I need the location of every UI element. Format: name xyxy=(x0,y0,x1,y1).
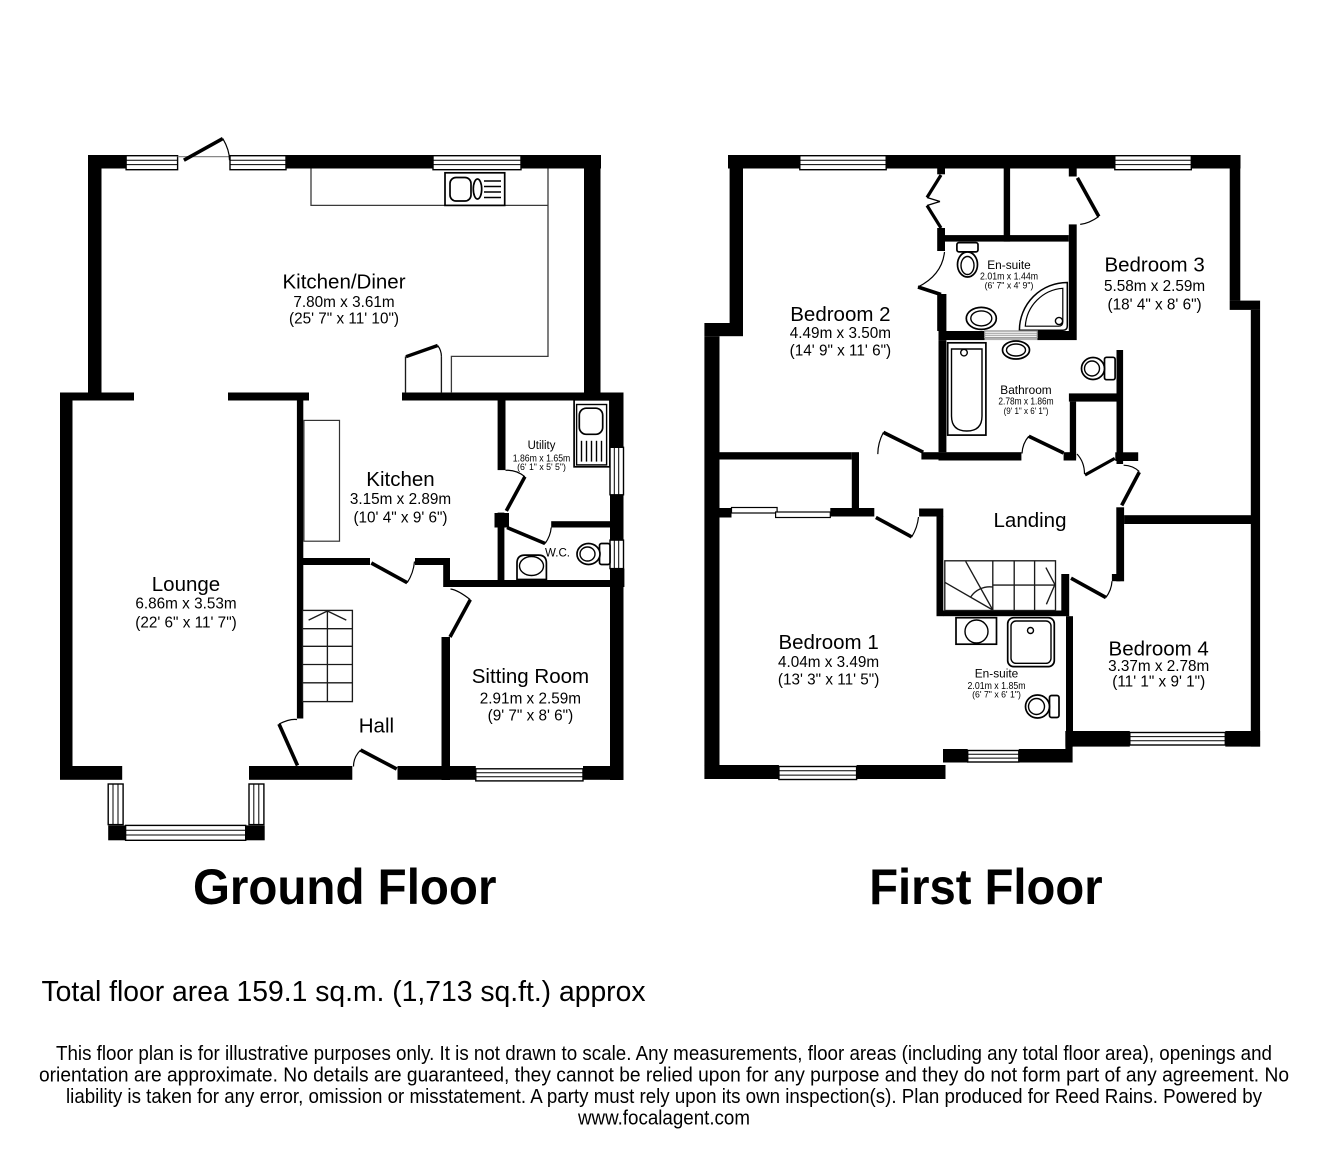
svg-text:7.80m x 3.61m: 7.80m x 3.61m xyxy=(293,294,394,311)
svg-text:Bedroom 3: Bedroom 3 xyxy=(1104,254,1204,277)
svg-text:(22' 6" x 11' 7"): (22' 6" x 11' 7") xyxy=(135,615,236,632)
svg-text:Utility: Utility xyxy=(528,438,557,452)
svg-text:(25' 7" x 11' 10"): (25' 7" x 11' 10") xyxy=(289,311,399,328)
svg-text:Lounge: Lounge xyxy=(152,573,220,596)
svg-text:Total floor area 159.1 sq.m. (: Total floor area 159.1 sq.m. (1,713 sq.f… xyxy=(42,976,647,1008)
svg-text:(10' 4" x 9' 6"): (10' 4" x 9' 6") xyxy=(353,510,447,527)
svg-text:2.91m x 2.59m: 2.91m x 2.59m xyxy=(480,691,581,708)
svg-text:(9' 1" x 6' 1"): (9' 1" x 6' 1") xyxy=(1004,406,1049,417)
svg-text:(6' 7" x 4' 9"): (6' 7" x 4' 9") xyxy=(985,281,1034,292)
svg-text:En-suite: En-suite xyxy=(975,667,1019,681)
svg-text:(6' 1" x 5' 5"): (6' 1" x 5' 5") xyxy=(517,462,566,473)
svg-text:orientation are approximate. N: orientation are approximate. No details … xyxy=(39,1064,1289,1087)
svg-text:Bedroom 1: Bedroom 1 xyxy=(778,631,878,654)
svg-text:(9' 7" x 8' 6"): (9' 7" x 8' 6") xyxy=(488,708,574,725)
svg-text:(6' 7" x 6' 1"): (6' 7" x 6' 1") xyxy=(972,690,1021,701)
svg-text:3.37m x 2.78m: 3.37m x 2.78m xyxy=(1108,658,1209,675)
svg-text:liability is taken for any err: liability is taken for any error, omissi… xyxy=(66,1085,1263,1108)
svg-text:Kitchen: Kitchen xyxy=(366,468,434,491)
svg-text:(18' 4" x 8' 6"): (18' 4" x 8' 6") xyxy=(1108,297,1202,314)
svg-text:Bedroom 2: Bedroom 2 xyxy=(790,303,890,326)
svg-text:4.04m x 3.49m: 4.04m x 3.49m xyxy=(778,654,879,671)
svg-text:Ground Floor: Ground Floor xyxy=(193,859,497,915)
svg-text:www.focalagent.com: www.focalagent.com xyxy=(577,1107,750,1130)
svg-text:(14' 9" x 11' 6"): (14' 9" x 11' 6") xyxy=(790,343,891,360)
svg-text:Sitting Room: Sitting Room xyxy=(472,665,589,688)
svg-text:(11' 1" x 9' 1"): (11' 1" x 9' 1") xyxy=(1112,674,1205,691)
svg-text:W.C.: W.C. xyxy=(545,545,570,559)
svg-text:Landing: Landing xyxy=(994,509,1067,532)
svg-text:First Floor: First Floor xyxy=(869,859,1102,915)
svg-text:6.86m x 3.53m: 6.86m x 3.53m xyxy=(135,596,236,613)
svg-text:3.15m x 2.89m: 3.15m x 2.89m xyxy=(350,491,451,508)
svg-text:(13' 3" x 11' 5"): (13' 3" x 11' 5") xyxy=(778,672,879,689)
svg-text:4.49m x 3.50m: 4.49m x 3.50m xyxy=(790,325,891,342)
svg-text:Hall: Hall xyxy=(359,715,394,738)
svg-text:5.58m x 2.59m: 5.58m x 2.59m xyxy=(1104,278,1205,295)
svg-text:Kitchen/Diner: Kitchen/Diner xyxy=(282,271,405,294)
svg-text:This floor plan is for illustr: This floor plan is for illustrative purp… xyxy=(56,1042,1272,1065)
